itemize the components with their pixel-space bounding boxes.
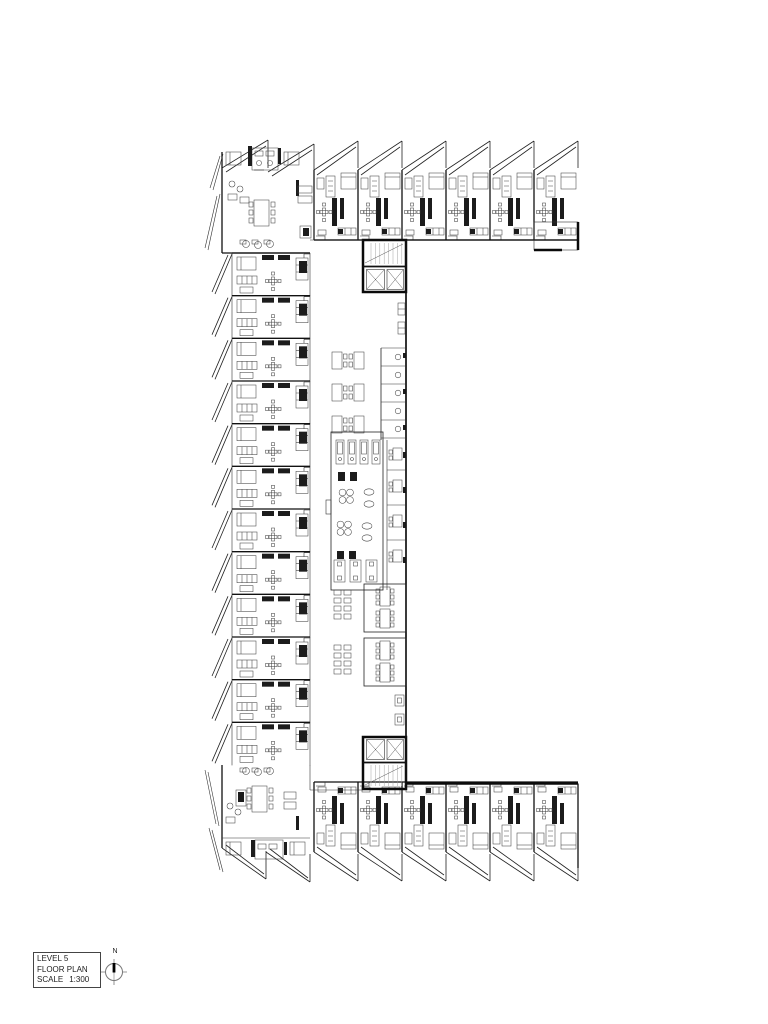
corridor-shelves	[398, 303, 405, 334]
toilet-rooms	[381, 348, 406, 440]
north-arrow: N	[98, 948, 132, 988]
gym-lounge-room	[326, 432, 383, 590]
corner-unit-northwest	[205, 140, 314, 253]
drawing-name: FLOOR PLAN	[37, 965, 97, 976]
workstations	[332, 352, 364, 433]
elevator-south	[367, 740, 404, 760]
title-block: LEVEL 5 FLOOR PLAN SCALE1:300	[33, 952, 101, 988]
booth-alcoves	[387, 440, 406, 590]
round-seating-1	[339, 489, 353, 503]
north-label: N	[98, 948, 132, 955]
stair-north	[365, 243, 403, 264]
compass-icon	[98, 956, 132, 988]
amenity-zone	[326, 303, 406, 725]
storage-units	[395, 695, 404, 725]
corner-unit-southwest	[205, 765, 310, 882]
level-label: LEVEL 5	[37, 954, 97, 965]
courtyard-boundary	[310, 222, 578, 868]
north-core	[363, 240, 406, 292]
meeting-rooms	[364, 584, 406, 686]
elevator-north	[367, 270, 404, 290]
lounge-seating	[334, 590, 351, 674]
round-seating-2	[337, 521, 351, 535]
treadmills	[336, 440, 380, 464]
stair-south	[365, 765, 403, 786]
south-core	[363, 737, 406, 789]
tables-south	[334, 560, 377, 582]
scale-label: SCALE1:300	[37, 975, 97, 986]
drawing-sheet: LEVEL 5 FLOOR PLAN SCALE1:300 N	[0, 0, 768, 1024]
floor-plan-drawing	[0, 0, 768, 1024]
